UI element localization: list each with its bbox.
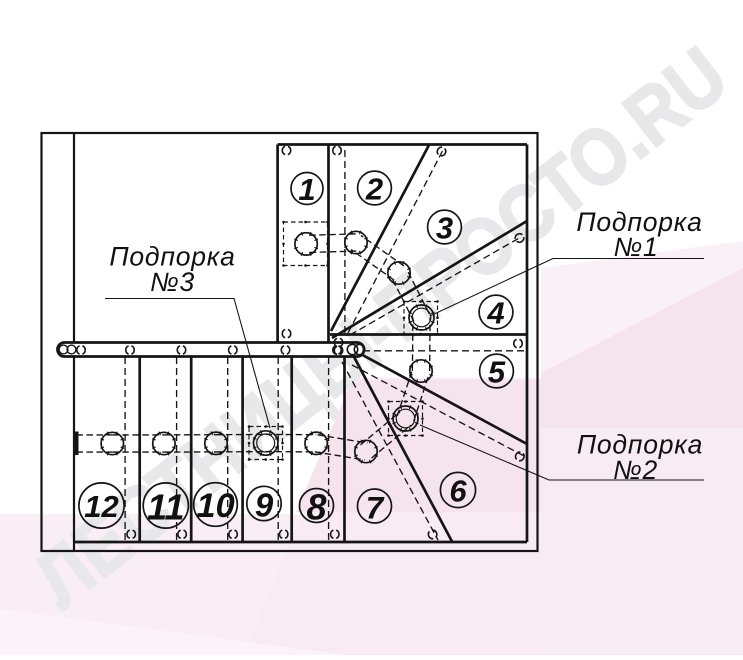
svg-text:9: 9 bbox=[255, 486, 274, 523]
svg-text:4: 4 bbox=[486, 296, 504, 331]
svg-text:12: 12 bbox=[84, 489, 118, 524]
svg-text:8: 8 bbox=[306, 486, 326, 527]
svg-text:1: 1 bbox=[298, 172, 315, 207]
svg-text:5: 5 bbox=[488, 355, 506, 390]
svg-text:7: 7 bbox=[366, 489, 385, 525]
svg-text:№1: №1 bbox=[613, 232, 658, 262]
svg-text:3: 3 bbox=[436, 211, 453, 246]
svg-text:10: 10 bbox=[196, 487, 234, 525]
svg-text:№2: №2 bbox=[613, 455, 658, 485]
svg-text:6: 6 bbox=[449, 474, 467, 509]
svg-text:№3: №3 bbox=[150, 267, 195, 297]
svg-text:2: 2 bbox=[365, 172, 383, 207]
svg-text:11: 11 bbox=[147, 486, 184, 527]
